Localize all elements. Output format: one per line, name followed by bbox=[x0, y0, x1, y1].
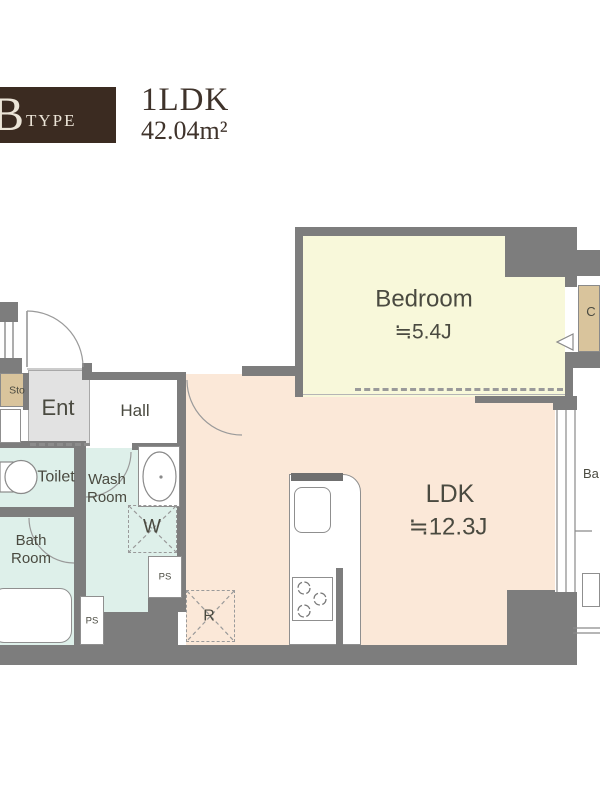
entrance-door-arc bbox=[27, 311, 83, 367]
wall bbox=[505, 227, 577, 277]
balcony-label: Ba bbox=[583, 466, 599, 482]
wall bbox=[148, 598, 186, 612]
washroom-label-line1: Wash bbox=[87, 471, 127, 489]
wall bbox=[336, 568, 343, 645]
wall bbox=[577, 250, 600, 276]
closet-label: C bbox=[586, 304, 595, 320]
wall bbox=[475, 396, 570, 403]
entrance-step-hatch bbox=[30, 443, 90, 446]
wall bbox=[553, 592, 577, 665]
floor-plan: B TYPE 1LDK 42.04m² bbox=[0, 0, 600, 800]
toilet-label: Toilet bbox=[37, 467, 74, 486]
sliding-door-track bbox=[303, 394, 565, 395]
wall bbox=[0, 302, 18, 322]
bathroom-label-line2: Room bbox=[11, 550, 51, 568]
refrigerator-label: R bbox=[203, 606, 215, 625]
balcony-rail-lines bbox=[573, 628, 600, 633]
wall bbox=[565, 275, 577, 287]
balcony-partition bbox=[582, 573, 600, 607]
wall bbox=[82, 363, 92, 380]
wall bbox=[0, 358, 22, 373]
type-letter: B bbox=[0, 91, 24, 139]
kitchen-sink bbox=[294, 487, 331, 533]
sliding-door-hatch bbox=[355, 388, 563, 391]
entrance-label: Ent bbox=[41, 395, 74, 421]
ldk-label: LDK bbox=[426, 479, 475, 509]
pipe-space-upper-label: PS bbox=[159, 571, 172, 582]
bathroom-label: Bath Room bbox=[11, 532, 51, 568]
washroom-label-line2: Room bbox=[87, 489, 127, 507]
wall bbox=[74, 441, 86, 612]
pipe-space-lower-label: PS bbox=[86, 615, 99, 626]
wall bbox=[291, 473, 343, 481]
wall bbox=[0, 645, 577, 665]
shoe-cabinet bbox=[0, 409, 21, 443]
plan-area: 42.04m² bbox=[141, 117, 229, 144]
ldk-size-label: ≒12.3J bbox=[409, 514, 488, 543]
bathroom-label-line1: Bath bbox=[11, 532, 51, 550]
plan-type: 1LDK bbox=[141, 84, 229, 117]
wash-basin-counter bbox=[138, 446, 180, 507]
slit-window-icon bbox=[5, 322, 13, 358]
hall-label: Hall bbox=[120, 401, 149, 421]
kitchen-stove bbox=[292, 577, 333, 621]
washroom-label: Wash Room bbox=[87, 471, 127, 507]
window-strip bbox=[555, 410, 577, 592]
type-badge: B TYPE bbox=[0, 87, 116, 143]
bedroom-label: Bedroom bbox=[375, 286, 472, 315]
type-word: TYPE bbox=[26, 111, 77, 131]
wall bbox=[0, 507, 74, 517]
wall bbox=[242, 366, 303, 376]
plan-title: 1LDK 42.04m² bbox=[141, 84, 229, 144]
bathtub bbox=[0, 588, 72, 643]
bedroom-size-label: ≒5.4J bbox=[394, 319, 451, 344]
wall bbox=[565, 352, 573, 400]
storage-label: Sto bbox=[9, 385, 25, 398]
wall bbox=[88, 372, 186, 380]
washing-machine-label: W bbox=[143, 517, 161, 540]
